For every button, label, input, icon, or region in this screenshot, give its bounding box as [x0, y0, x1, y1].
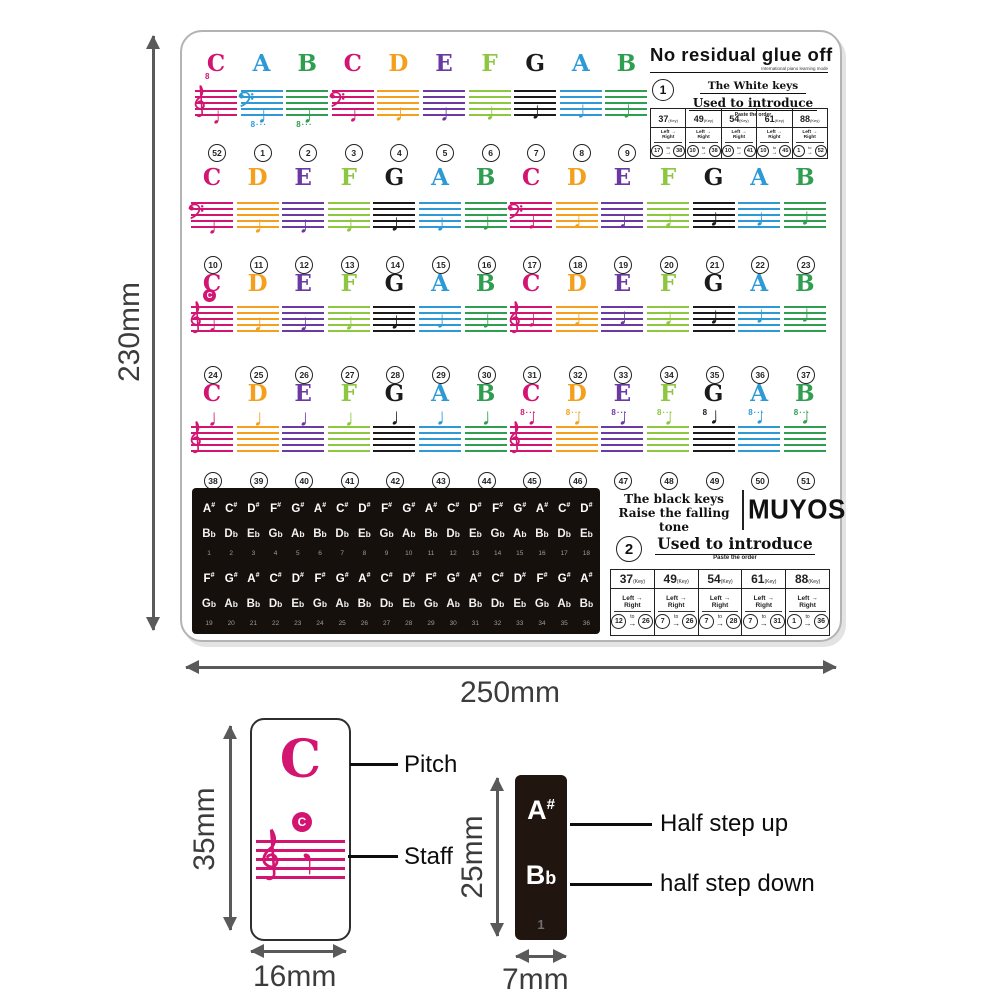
black-key-flat: Bb — [464, 598, 486, 610]
note-letter: B — [466, 380, 506, 407]
note-icon: ♩ — [390, 212, 414, 236]
paste-range-cell: Left → Right 1 to→ 52 — [792, 128, 827, 159]
black-key-number: 30 — [442, 620, 464, 627]
black-key-number: 31 — [464, 620, 486, 627]
staff-line — [282, 432, 324, 434]
black-key-flat: Gb — [531, 598, 553, 610]
note-icon: ♩ — [300, 846, 338, 884]
paste-range-cell: Left → Right 1 to→ 36 — [786, 589, 830, 636]
black-key-number: 27 — [376, 620, 398, 627]
key-count-header: 88(Key) — [792, 109, 827, 128]
staff-cell: ♩8··· — [556, 426, 598, 452]
octave-mark: 8··· — [794, 408, 810, 417]
black-key-flat: Eb — [575, 528, 597, 540]
black-key-number: 2 — [220, 550, 242, 557]
staff-label: Staff — [404, 843, 453, 871]
note-letter: C — [192, 164, 232, 191]
half-step-down-label: half step down — [660, 870, 815, 898]
bass-clef-icon — [188, 200, 204, 222]
pitch-callout-line — [350, 763, 398, 766]
note-letter: C — [333, 50, 373, 77]
staff-line — [237, 208, 279, 210]
key-number: 2 — [299, 144, 317, 162]
black-key-sharp: F# — [531, 572, 553, 585]
staff-line — [465, 432, 507, 434]
black-key-sharp: G# — [553, 572, 575, 585]
note-letter: G — [374, 164, 414, 191]
step1-badge: 1 — [652, 79, 674, 101]
black-key-flat: Db — [331, 528, 353, 540]
white-keys-infobox: No residual glue off International piano… — [650, 44, 828, 159]
black-key-sharp: C# — [376, 572, 398, 585]
staff-cell: ♩ — [556, 202, 598, 228]
black-key-flat: Db — [265, 598, 287, 610]
key-count-header: 88(Key) — [786, 570, 830, 589]
key-number: 5 — [436, 144, 454, 162]
bass-clef-icon — [329, 88, 345, 110]
paste-range-cell: Left → Right 7 to→ 26 — [654, 589, 698, 636]
note-letter: D — [378, 50, 418, 77]
staff-line — [647, 438, 689, 440]
staff-line — [373, 444, 415, 446]
note-letter: C — [511, 164, 551, 191]
black-key-flat: Eb — [398, 598, 420, 610]
staff-cell: ♩C — [191, 306, 233, 332]
black-key-flat: Bb — [242, 598, 264, 610]
detail-black-number: 1 — [515, 917, 567, 932]
staff-line — [282, 450, 324, 452]
black-sticker-detail: A# Bb 1 — [515, 775, 567, 940]
staff-line — [328, 438, 370, 440]
note-letter: B — [785, 164, 825, 191]
black-key-sharp: D# — [353, 502, 375, 515]
staff-cell: ♩ — [465, 202, 507, 228]
black-key-flat: Db — [442, 528, 464, 540]
note-icon: ♩ — [208, 313, 232, 337]
detail-sharp-text: A# — [515, 795, 567, 826]
black-keys-heading: The black keys — [610, 492, 738, 506]
staff-cell: ♩ — [419, 426, 461, 452]
note-icon: ♩ — [390, 310, 414, 334]
staff-cell: ♩8··· — [647, 426, 689, 452]
black-key-number: 18 — [575, 550, 597, 557]
staff-line — [373, 202, 415, 204]
paste-range-cell: Left → Right 10 to→ 41 — [721, 128, 756, 159]
staff-cell: ♩8 — [693, 426, 735, 452]
paste-range-cell: Left → Right 7 to→ 28 — [698, 589, 742, 636]
staff-line — [556, 438, 598, 440]
note-letter: D — [557, 164, 597, 191]
note-letter: F — [648, 380, 688, 407]
staff-line — [419, 432, 461, 434]
note-letter: E — [283, 164, 323, 191]
staff-line — [465, 202, 507, 204]
paste-range-cell: Left → Right 17 to→ 38 — [651, 128, 686, 159]
staff-line — [373, 438, 415, 440]
staff-cell: ♩ — [784, 306, 826, 332]
note-letter: C — [192, 380, 232, 407]
note-letter: D — [238, 270, 278, 297]
octave-mark: 8··· — [520, 408, 536, 417]
staff-cell: ♩ — [328, 426, 370, 452]
note-icon: ♩ — [254, 312, 278, 336]
black-key-flat: Gb — [420, 598, 442, 610]
note-letter: D — [238, 164, 278, 191]
black-key-flat: Ab — [553, 598, 575, 610]
staff-cell: ♩8 — [195, 90, 237, 116]
white-sticker-height-arrow — [229, 726, 232, 930]
staff-cell: ♩ — [510, 202, 552, 228]
black-key-sharp: A# — [464, 572, 486, 585]
black-key-sharp: C# — [265, 572, 287, 585]
staff-cell: ♩ — [419, 306, 461, 332]
staff-cell: ♩ — [693, 306, 735, 332]
staff-line — [738, 330, 780, 332]
sheet-width-label: 250mm — [460, 676, 560, 710]
note-icon: ♩ — [208, 407, 232, 431]
black-key-sharp: F# — [198, 572, 220, 585]
black-key-sharp: F# — [265, 502, 287, 515]
muyos-logo: MUYOS — [748, 493, 830, 526]
note-letter: E — [283, 380, 323, 407]
note-icon: ♩ — [577, 99, 601, 123]
black-key-sharp: G# — [287, 502, 309, 515]
staff-line — [693, 438, 735, 440]
note-icon: ♩ — [254, 214, 278, 238]
staff-line — [328, 208, 370, 210]
staff-line — [237, 202, 279, 204]
black-key-number: 9 — [376, 550, 398, 557]
staff-cell: ♩ — [377, 90, 419, 116]
staff-cell: ♩ — [469, 90, 511, 116]
key-number: 3 — [345, 144, 363, 162]
note-letter: F — [648, 164, 688, 191]
black-key-number: 3 — [242, 550, 264, 557]
staff-line — [784, 330, 826, 332]
step2-badge: 2 — [616, 536, 642, 562]
staff-cell: ♩ — [373, 202, 415, 228]
no-glue-subtitle: International piano learning mode — [650, 66, 828, 73]
note-letter: G — [694, 270, 734, 297]
note-letter: A — [420, 270, 460, 297]
note-letter: F — [470, 50, 510, 77]
staff-line — [328, 306, 370, 308]
note-letter: A — [242, 50, 282, 77]
note-icon: ♩ — [531, 100, 555, 124]
black-key-sharp: A# — [575, 572, 597, 585]
note-letter: G — [515, 50, 555, 77]
key-count-header: 54(Key) — [721, 109, 756, 128]
octave-mark: 8··· — [251, 120, 267, 129]
black-key-number: 10 — [398, 550, 420, 557]
key-number: 51 — [797, 472, 815, 490]
black-key-number: 20 — [220, 620, 242, 627]
black-key-flat: Gb — [198, 598, 220, 610]
black-key-number: 11 — [420, 550, 442, 557]
black-key-number: 4 — [265, 550, 287, 557]
staff-line — [693, 450, 735, 452]
note-letter: F — [329, 270, 369, 297]
note-icon: ♩ — [527, 210, 551, 234]
note-icon: ♩ — [345, 407, 369, 431]
black-key-sharp: C# — [487, 572, 509, 585]
black-key-flat: Bb — [531, 528, 553, 540]
note-letter: E — [602, 164, 642, 191]
note-letter: C — [511, 380, 551, 407]
white-keys-table: 37(Key)49(Key)54(Key)61(Key)88(Key)Left … — [650, 108, 828, 159]
staff-line — [282, 438, 324, 440]
note-icon: ♩ — [212, 105, 236, 129]
note-icon: ♩ — [440, 102, 464, 126]
black-sticker-width-arrow — [516, 955, 566, 958]
staff-cell: ♩ — [738, 202, 780, 228]
black-key-number: 1 — [198, 550, 220, 557]
key-number: 7 — [527, 144, 545, 162]
staff-cell: ♩8··· — [510, 426, 552, 452]
divider — [742, 490, 744, 530]
black-key-flat: Ab — [398, 528, 420, 540]
black-key-sharp: A# — [531, 502, 553, 515]
note-letter: F — [329, 380, 369, 407]
black-key-number: 32 — [487, 620, 509, 627]
black-key-number: 28 — [398, 620, 420, 627]
note-letter: E — [602, 270, 642, 297]
black-key-flat: Gb — [487, 528, 509, 540]
black-key-number: 34 — [531, 620, 553, 627]
staff-line — [693, 330, 735, 332]
staff-cell: ♩8··· — [601, 426, 643, 452]
staff-line — [282, 202, 324, 204]
note-icon: ♩ — [299, 214, 323, 238]
black-key-number: 29 — [420, 620, 442, 627]
key-number: 50 — [751, 472, 769, 490]
note-letter: B — [466, 164, 506, 191]
black-key-flat: Db — [487, 598, 509, 610]
octave-mark: 8··· — [566, 408, 582, 417]
octave-mark: 8 — [205, 72, 210, 81]
staff-line — [601, 438, 643, 440]
note-icon: ♩ — [618, 209, 642, 233]
staff-line — [693, 444, 735, 446]
note-icon: ♩ — [299, 312, 323, 336]
staff-cell: ♩ — [601, 202, 643, 228]
black-key-flat: Ab — [220, 598, 242, 610]
staff-line — [328, 450, 370, 452]
black-key-sharp: A# — [353, 572, 375, 585]
note-icon: ♩ — [801, 303, 825, 327]
note-icon: ♩ — [254, 407, 278, 431]
staff-line — [328, 202, 370, 204]
half-down-callout-line — [570, 883, 652, 886]
octave-mark: 8··· — [611, 408, 627, 417]
staff-line — [419, 202, 461, 204]
note-letter: B — [785, 270, 825, 297]
white-sticker-width-arrow — [251, 950, 346, 953]
black-key-sharp: C# — [331, 502, 353, 515]
staff-line — [423, 90, 465, 92]
note-letter: B — [466, 270, 506, 297]
black-key-sharp: F# — [309, 572, 331, 585]
staff-line — [647, 432, 689, 434]
black-key-number: 35 — [553, 620, 575, 627]
note-icon: ♩ — [482, 309, 506, 333]
staff-cell: ♩ — [647, 202, 689, 228]
black-keys-infobox: The black keys Raise the falling tone MU… — [610, 490, 830, 636]
key-count-header: 49(Key) — [654, 570, 698, 589]
note-icon: ♩ — [801, 206, 825, 230]
staff-line — [647, 450, 689, 452]
staff-cell: ♩ — [191, 202, 233, 228]
staff-cell: ♩ — [556, 306, 598, 332]
staff-line — [647, 444, 689, 446]
black-key-number: 22 — [265, 620, 287, 627]
staff-cell: ♩ — [514, 90, 556, 116]
black-key-number: 8 — [353, 550, 375, 557]
note-icon: ♩ — [390, 406, 414, 430]
staff-cell: ♩ — [373, 306, 415, 332]
black-key-flat: Bb — [575, 598, 597, 610]
used-to-introduce-2: Used to introduce — [655, 534, 814, 555]
black-key-sharp: G# — [509, 502, 531, 515]
staff-line — [738, 438, 780, 440]
note-icon: ♩ — [436, 406, 460, 430]
staff-line — [784, 438, 826, 440]
note-letter: D — [238, 380, 278, 407]
black-key-number: 14 — [487, 550, 509, 557]
black-key-flat: Eb — [287, 598, 309, 610]
staff-line — [556, 432, 598, 434]
note-icon: ♩ — [710, 207, 734, 231]
pitch-label: Pitch — [404, 751, 457, 779]
black-key-number: 7 — [331, 550, 353, 557]
staff-cell: ♩ — [237, 202, 279, 228]
black-key-flat: Bb — [309, 528, 331, 540]
black-key-flat: Eb — [242, 528, 264, 540]
note-icon: ♩ — [394, 102, 418, 126]
note-icon: ♩ — [345, 213, 369, 237]
black-key-number: 36 — [575, 620, 597, 627]
product-image: 230mm 250mm C♩852A♩8···1B♩8···2C♩3D♩4E♩5… — [0, 0, 1000, 1000]
staff-line — [693, 202, 735, 204]
staff-line — [465, 444, 507, 446]
staff-line — [738, 444, 780, 446]
note-icon: ♩ — [710, 405, 734, 429]
note-icon: ♩ — [436, 212, 460, 236]
staff-line — [647, 202, 689, 204]
staff-line — [556, 450, 598, 452]
raise-tone-heading: Raise the falling tone — [610, 506, 738, 534]
key-count-header: 61(Key) — [757, 109, 792, 128]
staff-line — [601, 432, 643, 434]
staff-cell: ♩ — [423, 90, 465, 116]
sheet-height-label: 230mm — [113, 277, 147, 387]
key-number: 1 — [254, 144, 272, 162]
staff-cell: ♩8··· — [241, 90, 283, 116]
staff-line — [784, 450, 826, 452]
staff-cell: ♩ — [693, 202, 735, 228]
black-key-sharp: C# — [220, 502, 242, 515]
black-key-flat: Db — [220, 528, 242, 540]
staff-line — [784, 432, 826, 434]
staff-cell: ♩ — [191, 426, 233, 452]
white-sticker-height-label: 35mm — [188, 774, 222, 884]
key-number: 49 — [706, 472, 724, 490]
staff-cell: ♩ — [419, 202, 461, 228]
black-key-number: 6 — [309, 550, 331, 557]
staff-line — [377, 90, 419, 92]
note-letter: G — [694, 164, 734, 191]
white-keys-heading: The White keys — [700, 80, 806, 94]
note-icon: ♩ — [482, 406, 506, 430]
black-key-number: 5 — [287, 550, 309, 557]
note-letter: C — [511, 270, 551, 297]
staff-line — [377, 96, 419, 98]
staff-line — [282, 306, 324, 308]
octave-mark: 8··· — [657, 408, 673, 417]
detail-pitch-letter: C — [252, 734, 349, 786]
note-icon: ♩ — [573, 307, 597, 331]
staff-line — [601, 444, 643, 446]
note-icon: ♩ — [345, 311, 369, 335]
note-letter: G — [374, 380, 414, 407]
black-key-number: 13 — [464, 550, 486, 557]
paste-range-cell: Left → Right 10 to→ 38 — [686, 128, 721, 159]
staff-cell: ♩ — [560, 90, 602, 116]
height-dimension-arrow — [152, 36, 155, 630]
paste-range-cell: Left → Right 10 to→ 45 — [757, 128, 792, 159]
note-icon: ♩ — [349, 103, 373, 127]
staff-cell: ♩ — [328, 202, 370, 228]
staff-line — [419, 444, 461, 446]
black-key-sharp: A# — [309, 502, 331, 515]
black-key-flat: Eb — [353, 528, 375, 540]
note-icon: ♩ — [755, 207, 779, 231]
staff-cell: ♩ — [332, 90, 374, 116]
key-count-header: 37(Key) — [651, 109, 686, 128]
black-key-sharp: G# — [442, 572, 464, 585]
paste-range-cell: Left → Right 12 to→ 26 — [611, 589, 655, 636]
staff-cell: ♩ — [738, 306, 780, 332]
staff-cell: ♩8··· — [286, 90, 328, 116]
black-key-flat: Gb — [309, 598, 331, 610]
black-key-flat: Gb — [265, 528, 287, 540]
staff-cell: ♩ — [328, 306, 370, 332]
black-key-flat: Db — [376, 598, 398, 610]
note-icon: ♩ — [299, 407, 323, 431]
staff-line — [328, 432, 370, 434]
note-letter: D — [557, 380, 597, 407]
note-icon: ♩ — [755, 304, 779, 328]
black-key-sharp: A# — [198, 502, 220, 515]
note-icon: ♩ — [482, 211, 506, 235]
note-icon: ♩ — [664, 306, 688, 330]
key-number: 47 — [614, 472, 632, 490]
staff-cell: ♩ — [465, 426, 507, 452]
note-letter: E — [283, 270, 323, 297]
black-key-flat: Bb — [353, 598, 375, 610]
staff-cell: ♩ — [605, 90, 647, 116]
black-key-number: 19 — [198, 620, 220, 627]
black-key-number: 15 — [509, 550, 531, 557]
bass-clef-icon — [507, 200, 523, 222]
staff-line — [693, 432, 735, 434]
staff-cell: ♩ — [647, 306, 689, 332]
note-icon: ♩ — [664, 208, 688, 232]
treble-clef-icon — [192, 83, 207, 121]
staff-cell: ♩ — [373, 426, 415, 452]
octave-mark: 8··· — [296, 120, 312, 129]
staff-line — [237, 450, 279, 452]
